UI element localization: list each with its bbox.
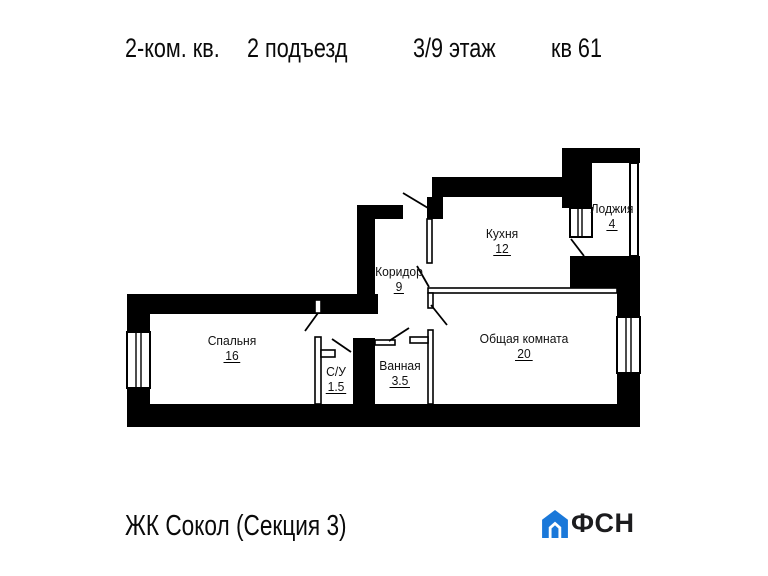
door-living	[431, 305, 447, 325]
wall-loggia-bottom	[570, 256, 640, 292]
door-loggia	[571, 239, 584, 256]
wall-right-lower	[617, 373, 640, 427]
room-label-bath: Ванная 3.5	[379, 358, 420, 388]
house-icon	[542, 510, 568, 538]
window-bedroom	[127, 332, 150, 388]
floorplan-page: 2-ком. кв. 2 подъезд 3/9 этаж кв 61	[0, 0, 768, 576]
bedroom-door-jamb	[315, 300, 321, 313]
brand-logo: ФСН	[542, 508, 635, 539]
room-area-living: 20	[480, 346, 569, 361]
wall-kitchen-top	[432, 177, 572, 197]
door-swings	[305, 193, 584, 352]
partition-kitchen-living	[428, 288, 617, 293]
room-area-bedroom: 16	[208, 348, 257, 363]
door-bath	[389, 328, 409, 341]
brand-text: ФСН	[571, 508, 635, 539]
su-fixture-stub	[321, 350, 335, 357]
wall-bedroom-top	[127, 294, 378, 314]
wall-entry-stub	[427, 197, 443, 219]
window-kitchen-loggia	[570, 208, 592, 237]
wall-bottom	[127, 404, 640, 427]
room-label-kitchen: Кухня 12	[486, 226, 518, 256]
room-label-corridor: Коридор 9	[375, 264, 423, 294]
room-label-loggia: Лоджия 4	[591, 201, 634, 231]
room-label-bedroom: Спальня 16	[208, 333, 257, 363]
wall-right-upper	[617, 292, 640, 317]
partition-bath-top-left	[375, 340, 395, 345]
project-name-label: ЖК Сокол (Секция 3)	[125, 510, 347, 543]
room-area-loggia: 4	[591, 216, 634, 231]
room-area-corridor: 9	[375, 279, 423, 294]
room-label-su: С/У 1.5	[326, 364, 347, 394]
partition-kitchen-entry	[427, 219, 432, 263]
room-label-living: Общая комната 20	[480, 331, 569, 361]
partition-su-left	[315, 337, 321, 404]
door-entrance	[403, 193, 428, 208]
wall-sanitary-divider	[353, 338, 375, 404]
room-area-kitchen: 12	[486, 241, 518, 256]
wall-left-upper	[127, 294, 150, 332]
window-living	[617, 317, 640, 373]
room-area-su: 1.5	[326, 379, 347, 394]
room-area-bath: 3.5	[379, 373, 420, 388]
door-bedroom	[305, 313, 318, 331]
partition-bath-top-right	[410, 337, 428, 343]
